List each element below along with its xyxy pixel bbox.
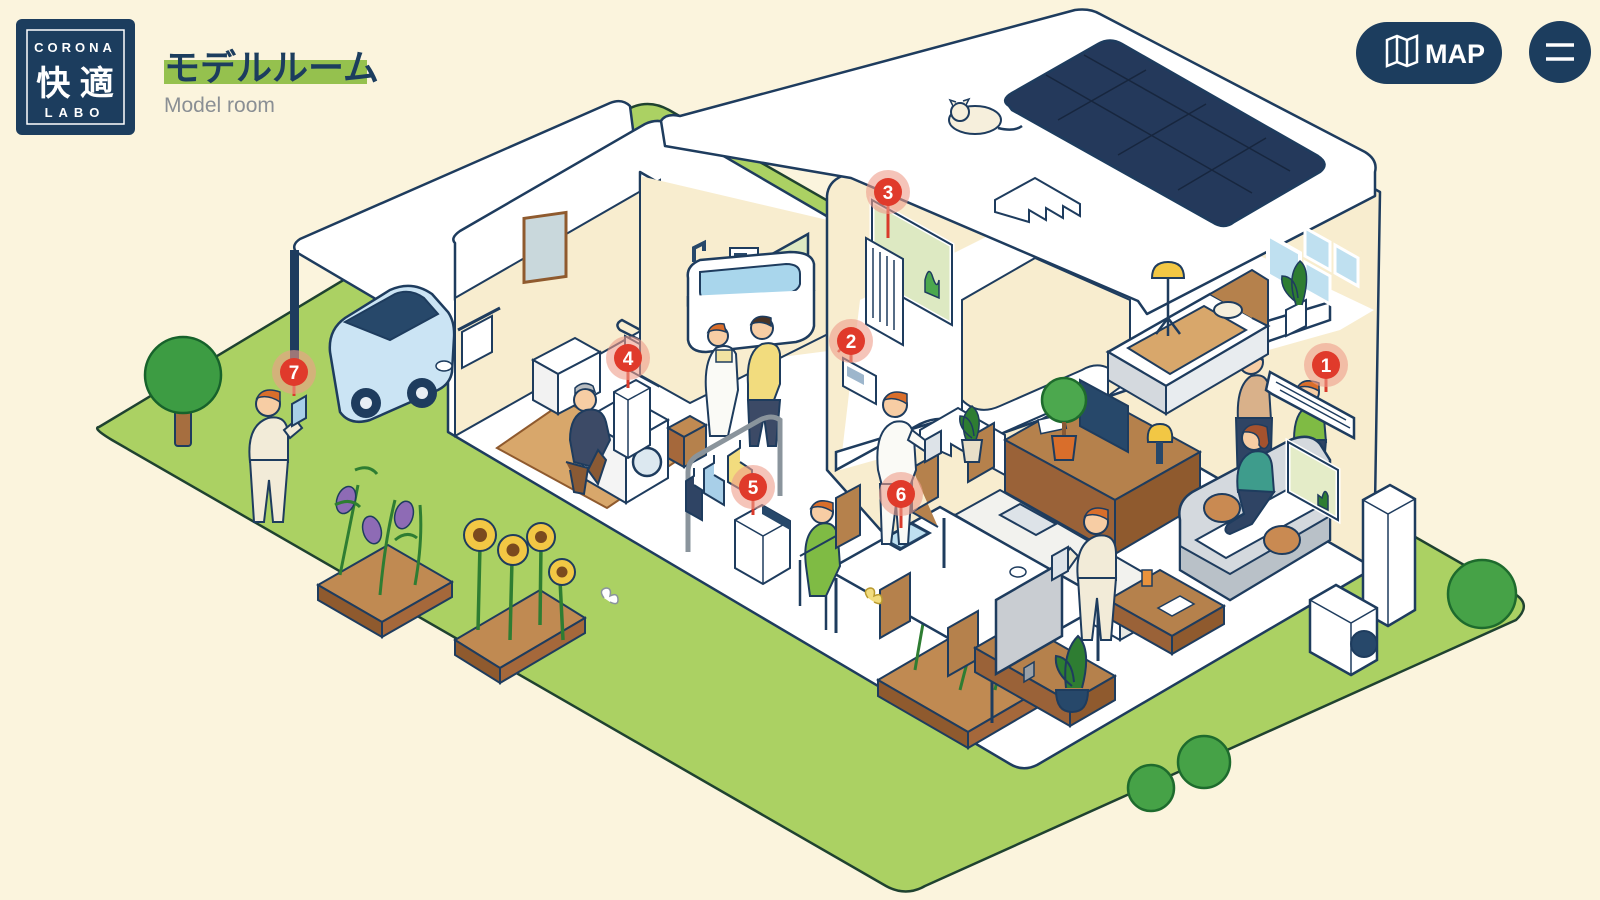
svg-text:6: 6 [896, 485, 907, 506]
svg-text:2: 2 [846, 332, 857, 353]
svg-text:Model room: Model room [164, 94, 275, 117]
svg-text:快 適: 快 適 [36, 65, 113, 103]
svg-text:3: 3 [883, 183, 894, 204]
svg-text:5: 5 [748, 478, 759, 499]
svg-text:モデルルーム: モデルルーム [164, 47, 379, 88]
svg-text:LABO: LABO [45, 105, 106, 120]
svg-text:MAP: MAP [1425, 39, 1485, 69]
svg-text:4: 4 [623, 349, 634, 370]
svg-text:1: 1 [1321, 356, 1332, 377]
svg-text:7: 7 [289, 363, 300, 384]
svg-text:CORONA: CORONA [34, 40, 116, 55]
